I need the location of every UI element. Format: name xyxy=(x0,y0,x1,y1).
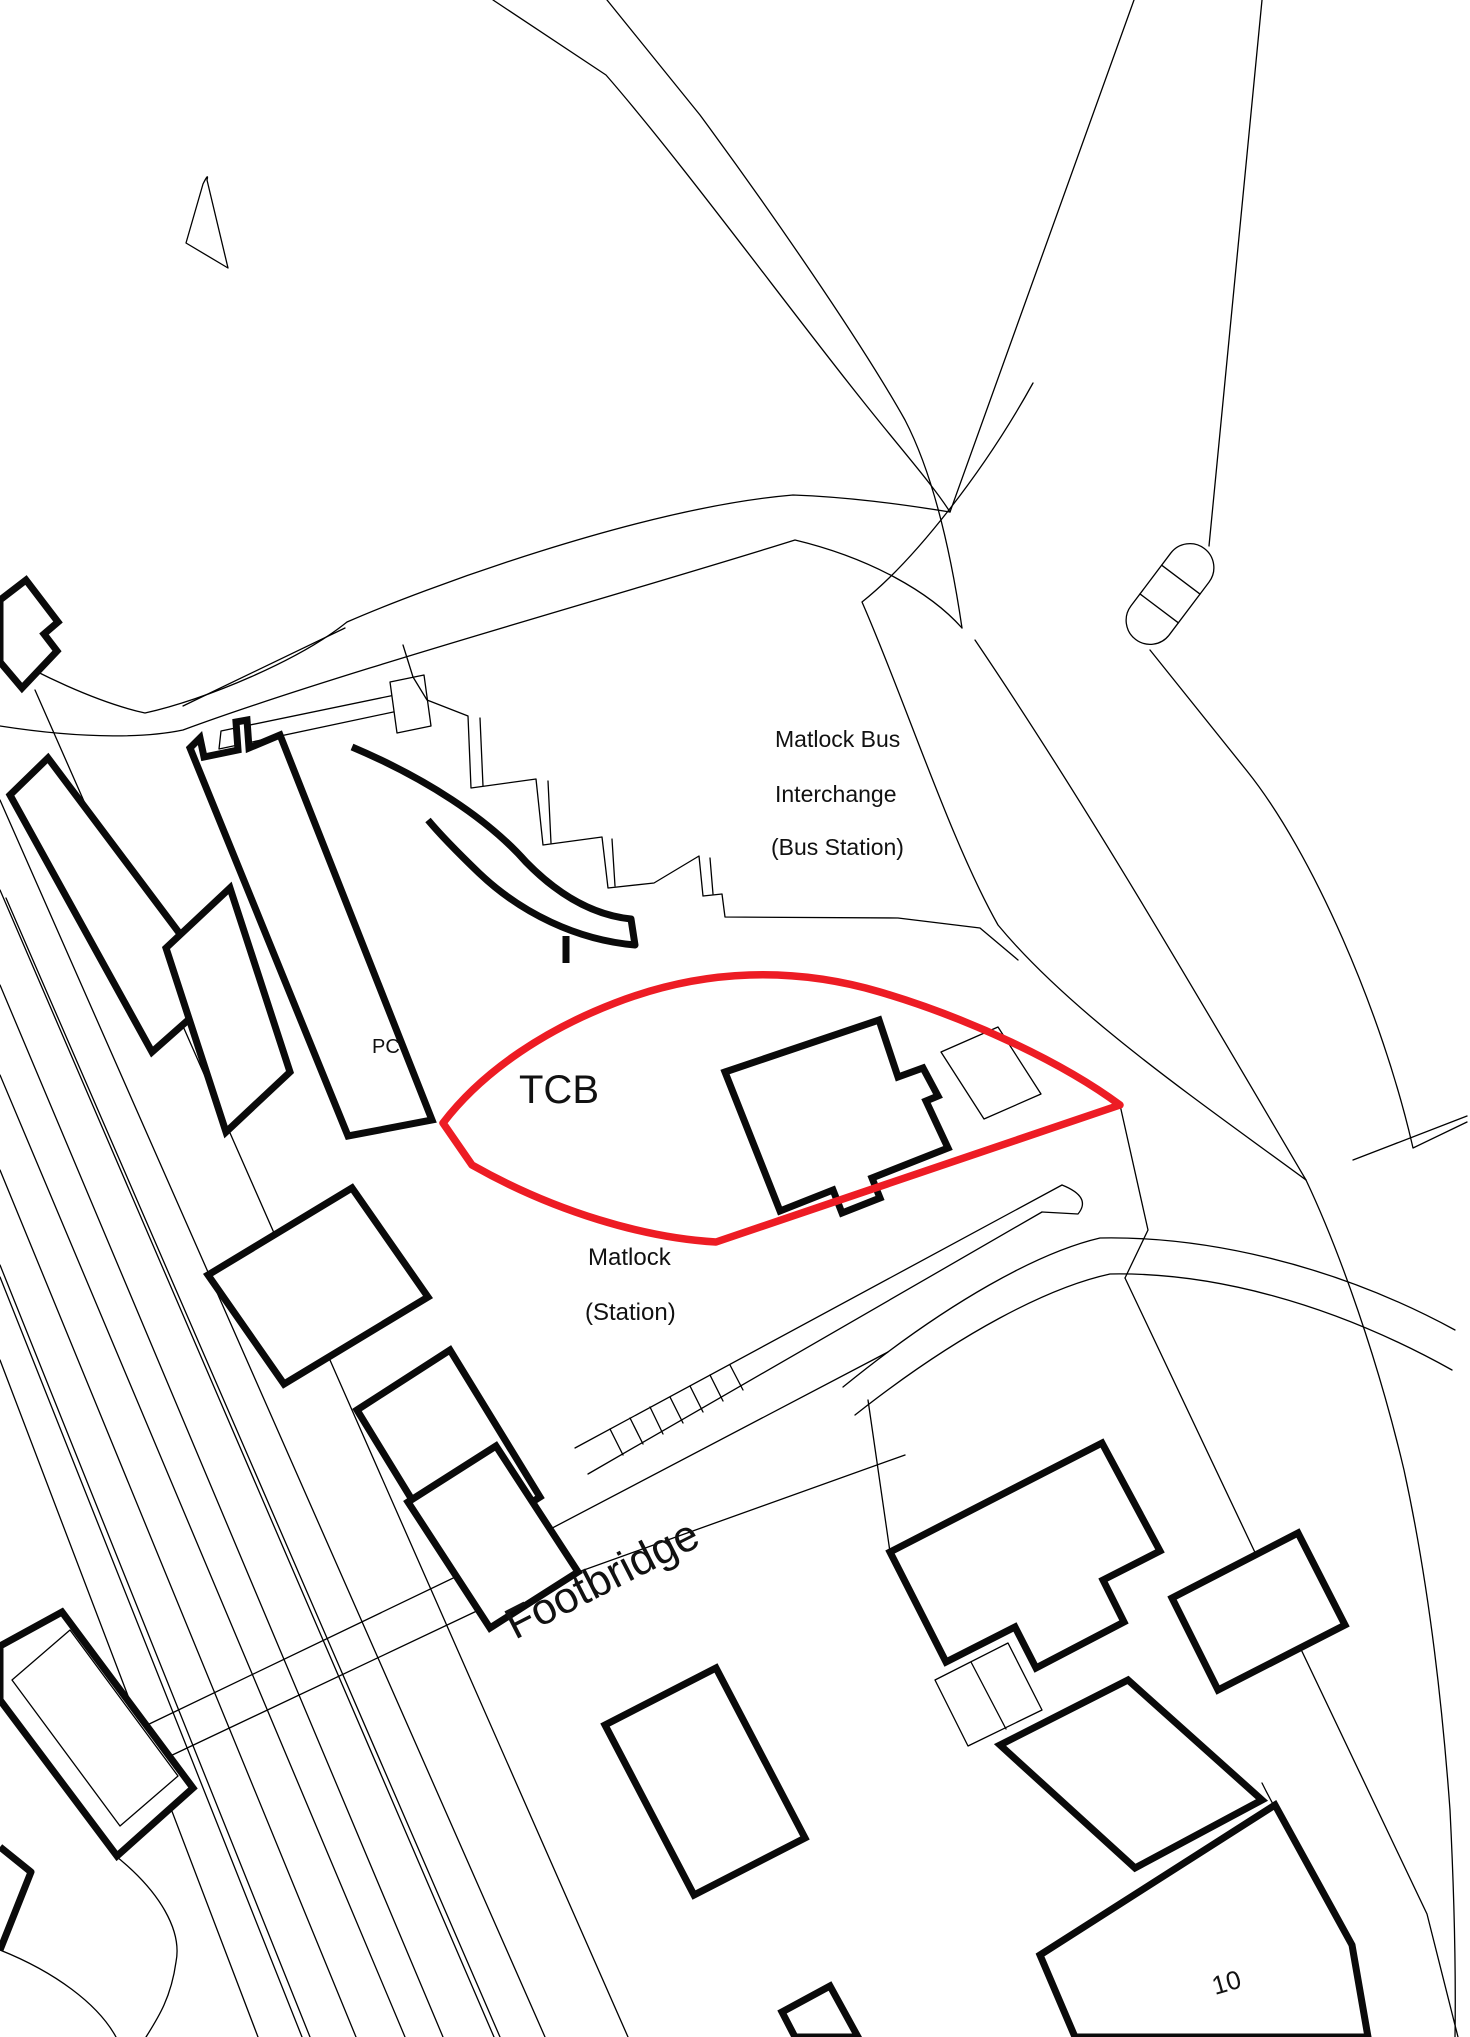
station-building xyxy=(725,1020,948,1213)
building-west-small xyxy=(0,580,58,688)
house-partial-bottom xyxy=(782,1986,858,2037)
bus-bays xyxy=(390,645,1018,960)
steps-rung xyxy=(630,1418,643,1444)
building-west-6-partial xyxy=(0,1847,31,1950)
ne-road-lower-segment xyxy=(1150,650,1467,1148)
house-10 xyxy=(1040,1805,1368,2037)
steps-rung xyxy=(690,1386,703,1412)
building-west-5 xyxy=(0,1612,193,1856)
junction-return-edge xyxy=(1353,1116,1467,1160)
building-west-3 xyxy=(208,1188,428,1384)
canopy-arc xyxy=(352,747,635,945)
steps-rung xyxy=(710,1375,723,1401)
pc-label: PC xyxy=(372,1036,400,1058)
house-1 xyxy=(890,1443,1160,1668)
east-loop-road xyxy=(862,383,1306,1180)
top-road-east-edge xyxy=(607,0,962,628)
station-label-line2: (Station) xyxy=(585,1299,676,1326)
site-plan-map: Matlock Bus Interchange (Bus Station) TC… xyxy=(0,0,1470,2037)
tcb-label: TCB xyxy=(519,1068,599,1112)
path-curve-b xyxy=(0,1950,116,2037)
interchange-label-line1: Matlock Bus xyxy=(775,726,900,752)
frontage-road-south-edge xyxy=(0,540,962,736)
kerb-line xyxy=(183,628,345,706)
pill-island-outline xyxy=(1117,534,1224,654)
interchange-label-line2: Interchange xyxy=(775,781,896,807)
frontage-road-north-edge xyxy=(0,495,950,713)
station-annex-outline xyxy=(941,1027,1041,1119)
station-road-curve-a xyxy=(843,1238,1455,1387)
top-road-west-edge xyxy=(493,0,950,512)
houses-south-east xyxy=(605,1443,1368,2037)
steps-rung xyxy=(650,1407,663,1434)
interchange-label-line3: (Bus Station) xyxy=(771,834,904,860)
bay-divider xyxy=(710,858,713,894)
steps-rung xyxy=(610,1429,623,1455)
plot-line-east xyxy=(1120,1105,1148,1278)
house-plot-line xyxy=(868,1400,890,1552)
ne-road-west-edge xyxy=(950,0,1134,512)
bus-shelter xyxy=(390,675,431,733)
platform-end-cap xyxy=(1042,1185,1082,1214)
bay-divider xyxy=(612,839,615,886)
sawtooth-bays xyxy=(427,700,1018,960)
house-5 xyxy=(605,1668,805,1895)
pill-island xyxy=(1117,534,1224,654)
steps-rung xyxy=(670,1397,683,1423)
bay-divider xyxy=(548,781,551,843)
track-line xyxy=(0,985,443,2037)
station-label-line1: Matlock xyxy=(588,1244,672,1271)
house-2 xyxy=(1172,1533,1345,1690)
bay-divider xyxy=(480,718,483,786)
site-plan-canvas: Matlock Bus Interchange (Bus Station) TC… xyxy=(0,0,1470,2037)
ne-road-east-edge xyxy=(1209,0,1262,546)
path-curve-a xyxy=(112,1853,177,2037)
triangle-landmark xyxy=(186,177,228,268)
station-road-curve-b xyxy=(855,1274,1452,1415)
steps-rung xyxy=(730,1365,743,1390)
